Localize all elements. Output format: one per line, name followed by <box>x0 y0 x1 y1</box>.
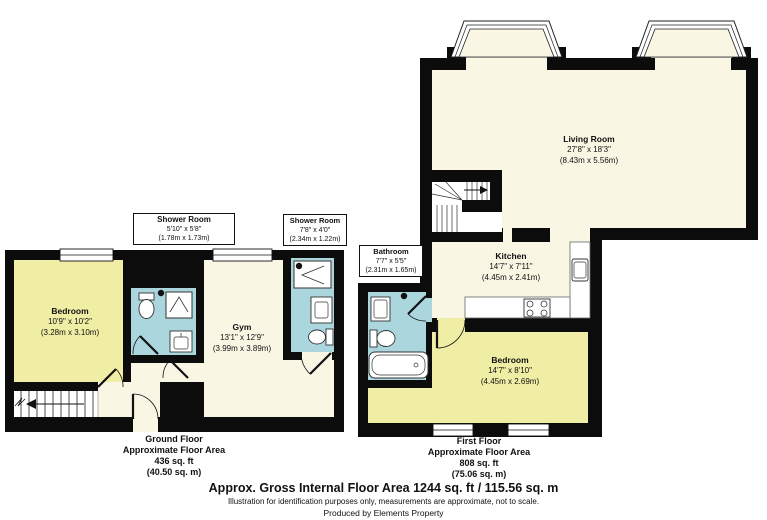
room-size-metric: (2.34m x 1.22m) <box>286 235 344 244</box>
ff-kitchen-label: Kitchen 14'7" x 7'11" (4.45m x 2.41m) <box>461 251 561 283</box>
doorstop-dot <box>296 263 302 269</box>
room-name: Bedroom <box>20 306 120 317</box>
ff-bay2-opening <box>655 58 731 70</box>
room-size-imperial: 13'1" x 12'9" <box>192 333 292 344</box>
room-name: Gym <box>192 322 292 333</box>
gf-gym-window <box>213 249 272 261</box>
room-name: Bedroom <box>460 355 560 366</box>
toilet-icon <box>370 330 377 347</box>
floor-name: Ground Floor <box>99 434 249 445</box>
room-size-metric: (4.45m x 2.69m) <box>460 377 560 388</box>
ff-living-room-label: Living Room 27'8" x 18'3" (8.43m x 5.56m… <box>539 134 639 166</box>
ff-staircase <box>420 170 503 242</box>
ff-summary: First Floor Approximate Floor Area 808 s… <box>404 436 554 480</box>
room-name: Shower Room <box>286 216 344 226</box>
gross-area-title: Approx. Gross Internal Floor Area 1244 s… <box>0 481 767 495</box>
floor-area-metric: (40.50 sq. m) <box>99 467 249 478</box>
ff-bathroom-label: Bathroom 7'7" x 5'5" (2.31m x 1.65m) <box>359 245 423 277</box>
room-size-imperial: 5'10" x 5'8" <box>136 225 232 234</box>
toilet-icon <box>139 300 154 319</box>
room-size-imperial: 27'8" x 18'3" <box>539 145 639 156</box>
room-size-metric: (1.78m x 1.73m) <box>136 234 232 243</box>
ff-bay1-opening <box>466 58 547 70</box>
room-size-imperial: 7'8" x 4'0" <box>286 226 344 235</box>
ff-kitchen-opening <box>550 228 590 242</box>
ff-bedroom-door-opening <box>437 318 465 332</box>
ff-passage-opening <box>503 228 512 242</box>
gf-shower-room-2-label: Shower Room 7'8" x 4'0" (2.34m x 1.22m) <box>283 214 347 246</box>
floor-area-label: Approximate Floor Area <box>404 447 554 458</box>
floor-area-label: Approximate Floor Area <box>99 445 249 456</box>
gf-shower-room-1-label: Shower Room 5'10" x 5'8" (1.78m x 1.73m) <box>133 213 235 245</box>
room-name: Kitchen <box>461 251 561 262</box>
gf-hall-floor <box>131 382 160 417</box>
room-size-metric: (3.99m x 3.89m) <box>192 344 292 355</box>
room-name: Bathroom <box>362 247 420 257</box>
producer-credit: Produced by Elements Property <box>0 508 767 518</box>
sink-icon <box>311 297 332 323</box>
room-size-metric: (3.28m x 3.10m) <box>20 328 120 339</box>
gf-entry-opening <box>133 417 158 432</box>
gf-bedroom-label: Bedroom 10'9" x 10'2" (3.28m x 3.10m) <box>20 306 120 338</box>
ff-bedroom-label: Bedroom 14'7" x 8'10" (4.45m x 2.69m) <box>460 355 560 387</box>
room-name: Living Room <box>539 134 639 145</box>
shower-tray-icon <box>166 292 192 318</box>
ff-bathroom-door-opening <box>424 298 432 322</box>
room-size-imperial: 14'7" x 7'11" <box>461 262 561 273</box>
toilet-icon <box>309 330 326 344</box>
floor-area-metric: (75.06 sq. m) <box>404 469 554 480</box>
floorplan-canvas: Bedroom 10'9" x 10'2" (3.28m x 3.10m) Gy… <box>0 0 767 520</box>
room-size-imperial: 7'7" x 5'5" <box>362 257 420 266</box>
gf-staircase <box>14 391 98 417</box>
floor-area-imperial: 808 sq. ft <box>404 458 554 469</box>
room-size-metric: (4.45m x 2.41m) <box>461 273 561 284</box>
gf-hall-floor <box>131 363 204 382</box>
room-size-metric: (2.31m x 1.65m) <box>362 266 420 275</box>
room-size-metric: (8.43m x 5.56m) <box>539 156 639 167</box>
sink-icon <box>572 259 588 281</box>
bathtub-icon <box>369 352 428 378</box>
gf-gym-label: Gym 13'1" x 12'9" (3.99m x 3.89m) <box>192 322 292 354</box>
room-size-imperial: 10'9" x 10'2" <box>20 317 120 328</box>
room-size-imperial: 14'7" x 8'10" <box>460 366 560 377</box>
doorstop-dot <box>401 293 407 299</box>
doorstop-dot <box>158 290 164 296</box>
gf-bedroom-window <box>60 249 113 261</box>
room-name: Shower Room <box>136 215 232 225</box>
disclaimer-note: Illustration for identification purposes… <box>0 497 767 507</box>
ff-bay-window-2 <box>632 21 751 58</box>
toilet-icon <box>326 329 333 345</box>
gf-hall-floor <box>98 382 131 417</box>
ff-kitchen-wall <box>512 228 550 240</box>
ff-bay-window-1 <box>447 21 566 58</box>
floor-area-imperial: 436 sq. ft <box>99 456 249 467</box>
ground-floor-plan <box>5 249 344 432</box>
gf-summary: Ground Floor Approximate Floor Area 436 … <box>99 434 249 478</box>
floor-name: First Floor <box>404 436 554 447</box>
toilet-icon <box>377 331 395 347</box>
toilet-icon <box>139 293 154 300</box>
